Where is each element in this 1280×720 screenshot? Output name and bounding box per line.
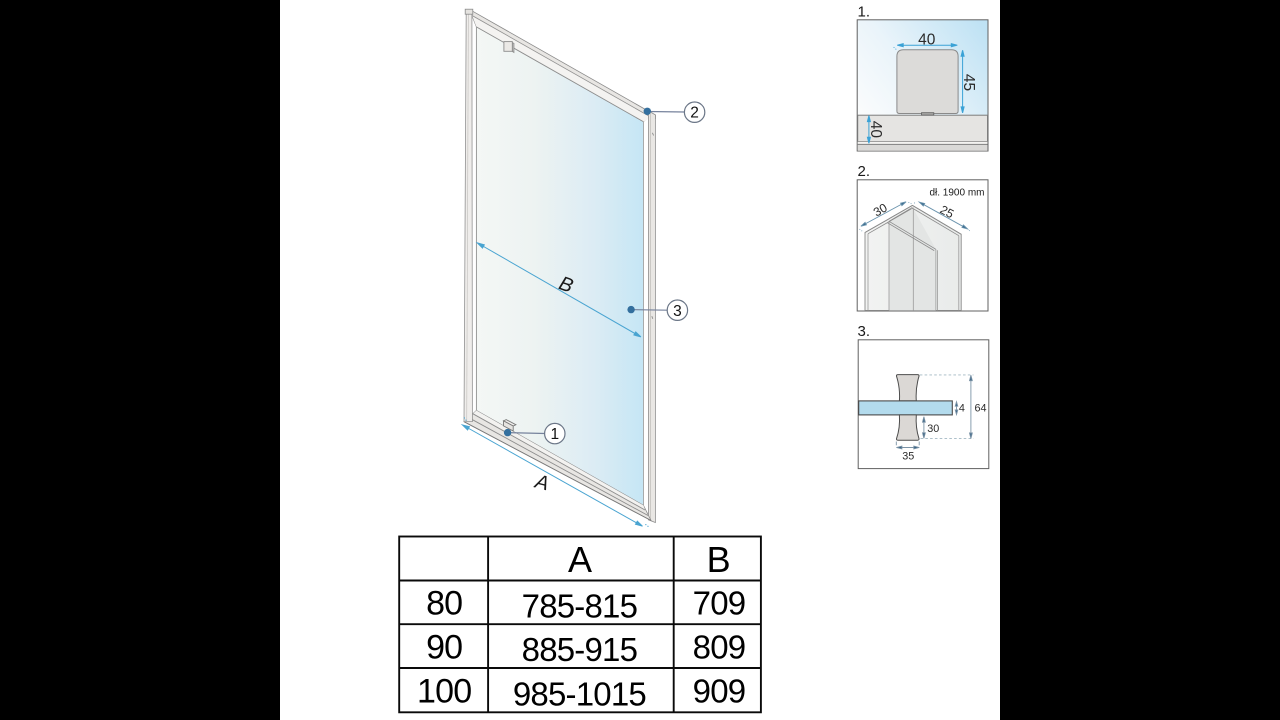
svg-text:35: 35 bbox=[902, 451, 914, 463]
svg-text:1.: 1. bbox=[858, 4, 871, 21]
svg-text:dł. 1900 mm: dł. 1900 mm bbox=[929, 187, 984, 198]
svg-text:3.: 3. bbox=[858, 323, 871, 340]
svg-text:A: A bbox=[532, 470, 551, 495]
svg-text:40: 40 bbox=[918, 31, 936, 48]
svg-text:2.: 2. bbox=[858, 163, 871, 180]
svg-text:709: 709 bbox=[693, 585, 746, 622]
svg-text:100: 100 bbox=[417, 673, 471, 711]
svg-text:909: 909 bbox=[693, 673, 746, 710]
svg-text:80: 80 bbox=[426, 585, 462, 623]
svg-text:3: 3 bbox=[673, 303, 682, 320]
svg-text:809: 809 bbox=[693, 628, 746, 665]
svg-text:40: 40 bbox=[867, 121, 884, 139]
svg-text:2: 2 bbox=[690, 105, 699, 122]
svg-text:985-1015: 985-1015 bbox=[513, 675, 646, 712]
svg-text:A: A bbox=[568, 539, 592, 580]
svg-text:4: 4 bbox=[959, 402, 965, 414]
svg-text:B: B bbox=[707, 539, 731, 580]
svg-text:30: 30 bbox=[927, 423, 939, 435]
svg-text:1: 1 bbox=[550, 426, 559, 443]
svg-text:785-815: 785-815 bbox=[522, 587, 638, 624]
svg-text:45: 45 bbox=[960, 74, 977, 91]
svg-text:885-915: 885-915 bbox=[522, 631, 638, 668]
svg-text:64: 64 bbox=[975, 402, 987, 414]
svg-text:90: 90 bbox=[426, 628, 462, 666]
